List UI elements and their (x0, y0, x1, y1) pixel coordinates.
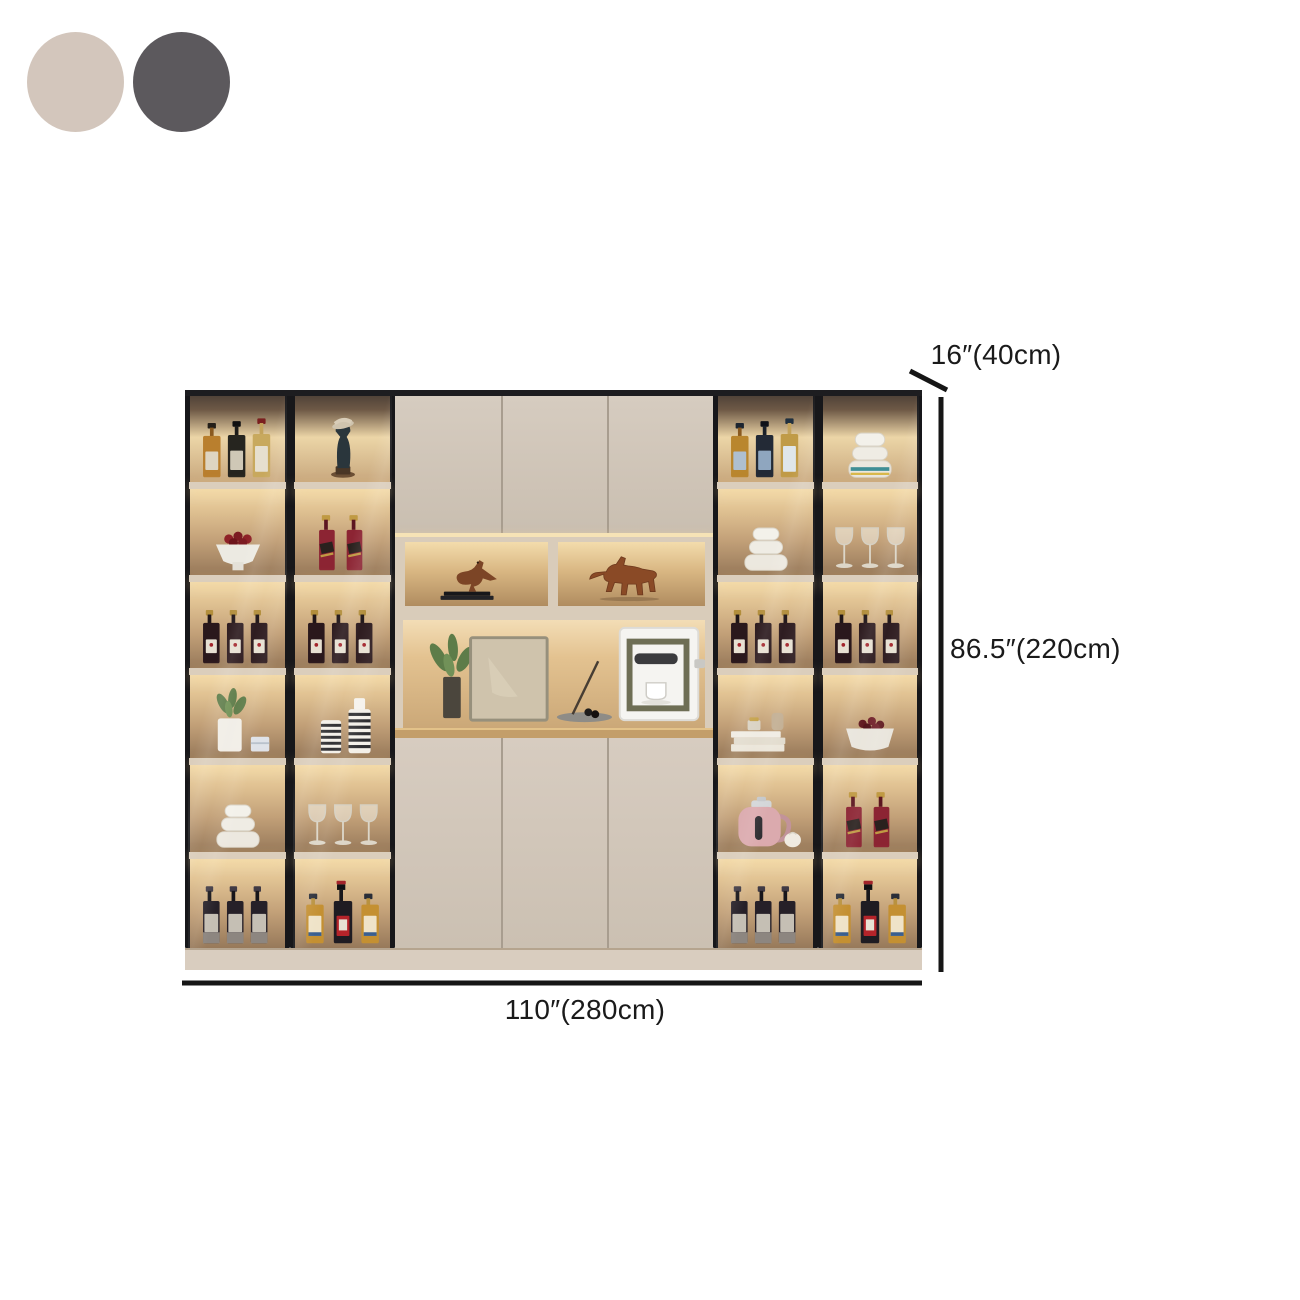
cabinet-plinth (185, 948, 922, 970)
color-swatch-beige[interactable] (27, 32, 124, 132)
glass-column (290, 390, 395, 948)
picture-frame (471, 638, 548, 720)
color-swatch-dark-gray[interactable] (133, 32, 230, 132)
display-frame-right (705, 620, 713, 728)
glass-door (716, 396, 815, 948)
dimension-height-label: 86.5″(220cm) (950, 633, 1121, 665)
cabinet-top-frame (185, 390, 922, 396)
open-display-area (403, 620, 705, 728)
coffee-machine (620, 628, 705, 720)
glass-door (188, 396, 287, 948)
dimension-depth-label: 16″(40cm) (860, 339, 1132, 371)
upper-cabinet-doors (395, 395, 713, 537)
door-divider (607, 395, 609, 537)
display-items (403, 620, 705, 726)
door-divider (607, 738, 609, 948)
niche-compartment (558, 542, 705, 606)
glass-door (821, 396, 919, 948)
glass-door (293, 396, 392, 948)
glass-column (185, 390, 290, 948)
cabinet-illustration (185, 390, 922, 970)
dimension-width-label: 110″(280cm) (435, 994, 735, 1026)
plant (426, 633, 476, 718)
door-divider (501, 395, 503, 537)
door-divider (501, 738, 503, 948)
counter-top (395, 728, 713, 738)
display-niche (395, 537, 713, 620)
niche-compartment (405, 542, 548, 606)
display-frame-left (395, 620, 403, 728)
glass-column (713, 390, 818, 948)
horse-figurine (569, 546, 693, 604)
lower-cabinet-doors (395, 738, 713, 948)
incense-tray (557, 661, 612, 722)
bird-figurine (419, 546, 535, 604)
dimension-leader-depth (910, 371, 947, 390)
product-image-canvas: 16″(40cm) 86.5″(220cm) 110″(280cm) (0, 0, 1300, 1300)
glass-column (818, 390, 922, 948)
